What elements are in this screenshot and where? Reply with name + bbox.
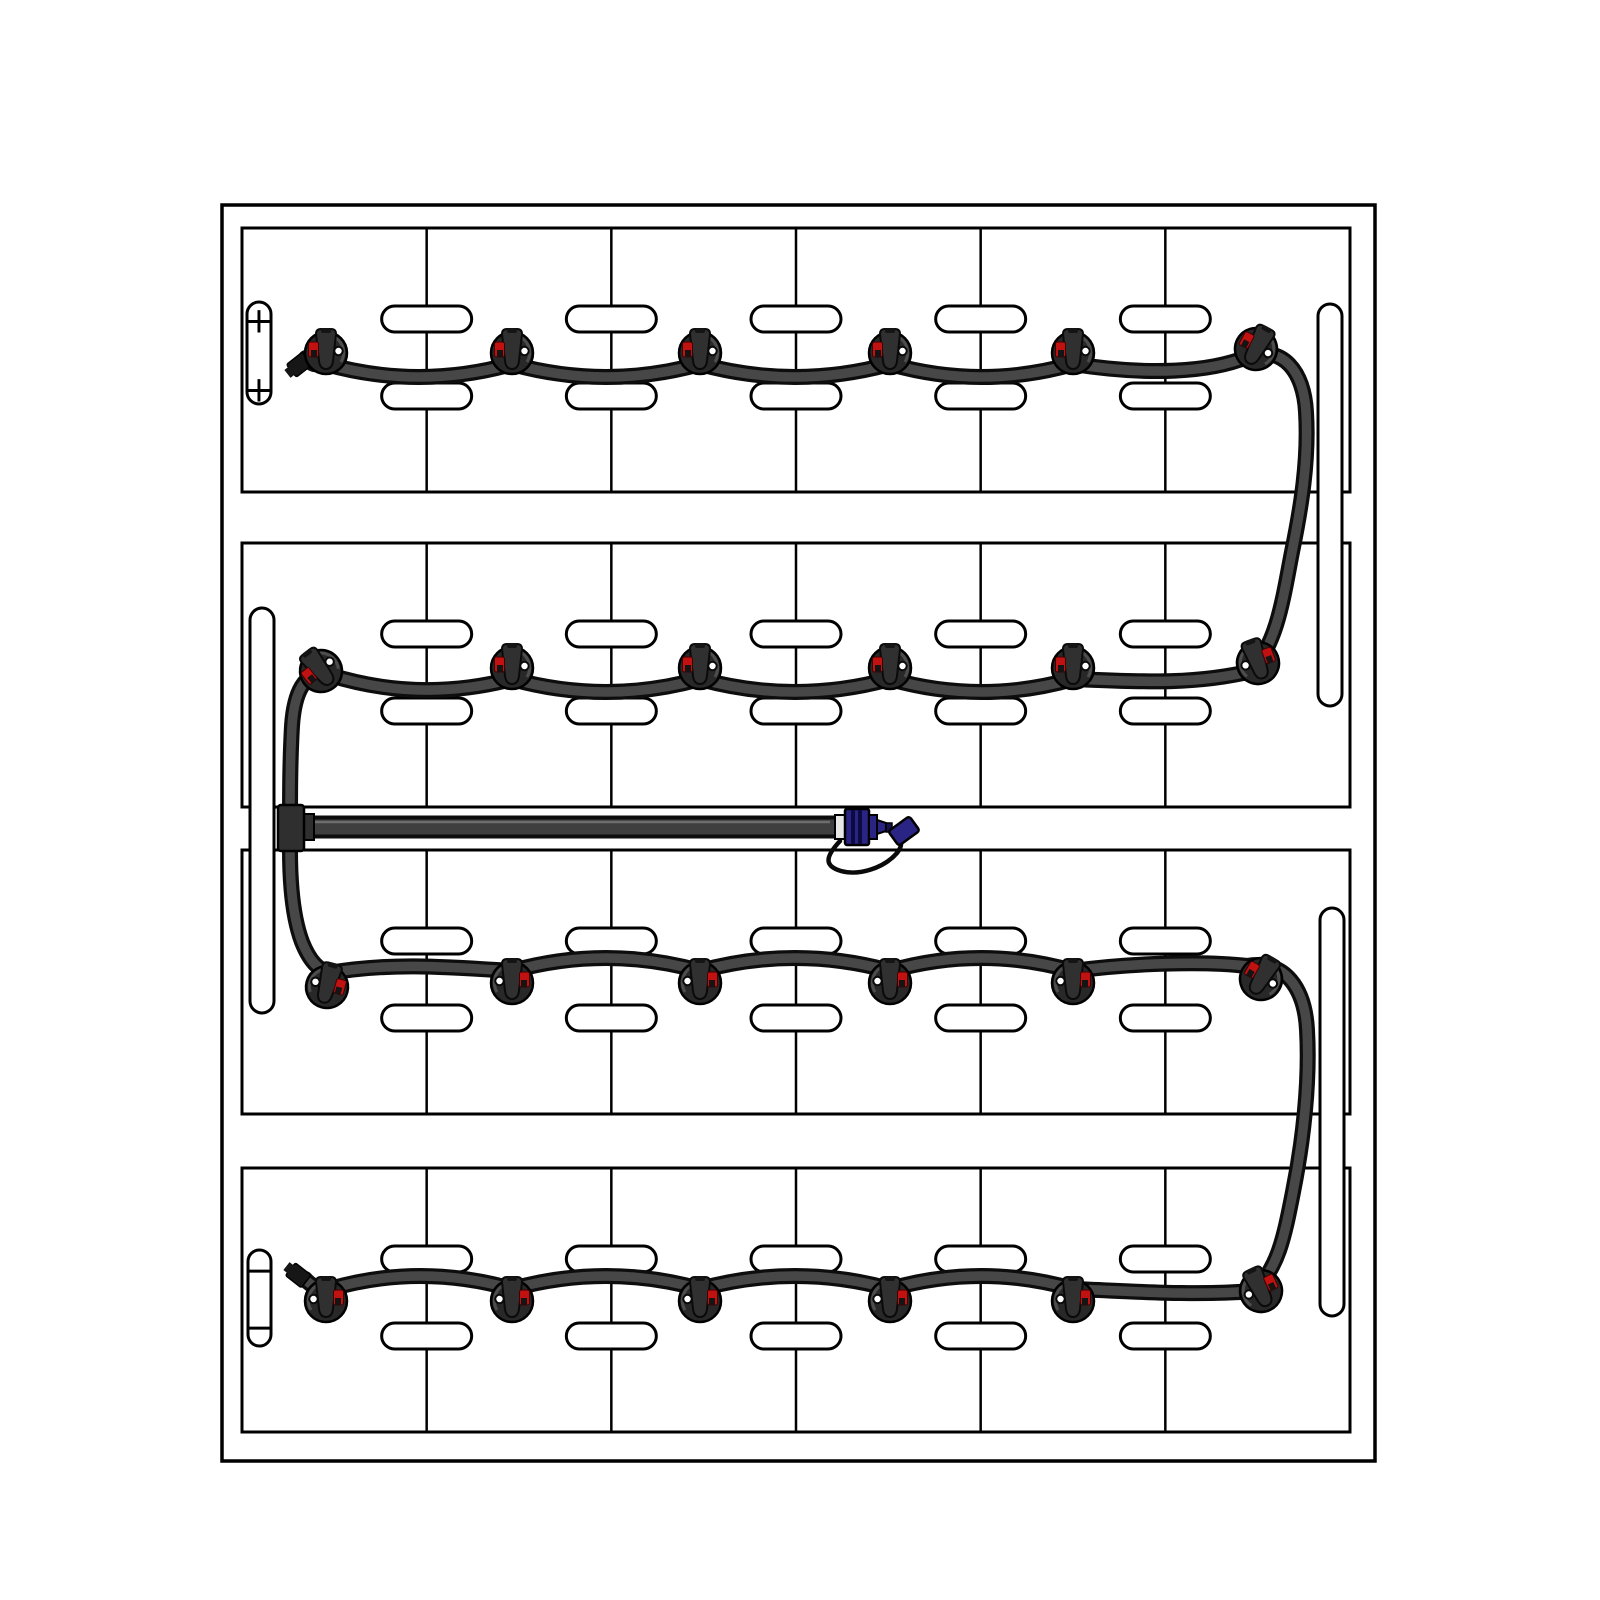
cap-vent-dot xyxy=(898,347,906,355)
vent-slot xyxy=(751,1005,841,1031)
cap-vent-dot xyxy=(708,347,716,355)
vent-slot xyxy=(1120,928,1210,954)
cap-indicator-notch xyxy=(311,350,317,357)
cap-indicator-notch xyxy=(875,665,881,672)
cap-tab xyxy=(321,1276,331,1281)
vent-slot xyxy=(566,698,656,724)
vent-slot xyxy=(382,1323,472,1349)
negative-terminal-symbol: − xyxy=(244,1308,274,1349)
vent-slot xyxy=(1120,1246,1210,1272)
vent-slot xyxy=(382,383,472,409)
vent-slot xyxy=(1120,1323,1210,1349)
vent-slot xyxy=(751,698,841,724)
vent-slot xyxy=(936,698,1026,724)
cap-vent-dot xyxy=(1056,977,1064,985)
cap-tab xyxy=(885,643,895,648)
cap-tab xyxy=(695,328,705,333)
cap-tab xyxy=(507,1276,517,1281)
vent-slot xyxy=(936,621,1026,647)
vent-slot xyxy=(936,1005,1026,1031)
cap-vent-dot xyxy=(708,662,716,670)
cap-indicator-notch xyxy=(685,665,691,672)
vent-slot xyxy=(1120,383,1210,409)
vent-slot xyxy=(382,698,472,724)
vent-slot xyxy=(751,621,841,647)
cap-tab xyxy=(507,328,517,333)
vent-slot xyxy=(751,306,841,332)
cap-vent-dot xyxy=(873,1295,881,1303)
cap-tab xyxy=(885,958,895,963)
cap-indicator-notch xyxy=(521,1298,527,1305)
tee-fitting xyxy=(278,805,304,851)
vent-slot xyxy=(382,621,472,647)
cap-indicator-notch xyxy=(1082,980,1088,987)
cap-vent-dot xyxy=(898,662,906,670)
cap-indicator-notch xyxy=(521,980,527,987)
vent-slot xyxy=(566,383,656,409)
vent-slot xyxy=(751,383,841,409)
battery-watering-diagram: ++−− xyxy=(0,0,1600,1600)
cap-vent-dot xyxy=(520,662,528,670)
cap-vent-dot xyxy=(873,977,881,985)
vent-slot xyxy=(566,306,656,332)
cap-tab xyxy=(1068,328,1078,333)
cap-indicator-notch xyxy=(497,665,503,672)
quick-connector-rib xyxy=(858,810,862,844)
cap-tab xyxy=(1068,643,1078,648)
positive-terminal-symbol: + xyxy=(244,301,274,342)
vent-slot xyxy=(1120,621,1210,647)
quick-connector-nozzle xyxy=(877,820,886,834)
cap-vent-dot xyxy=(683,1295,691,1303)
cap-tab xyxy=(321,328,331,333)
cap-indicator-notch xyxy=(497,350,503,357)
cap-vent-dot xyxy=(1081,662,1089,670)
side-vent-channel xyxy=(250,608,274,1013)
vent-slot xyxy=(382,928,472,954)
vent-slot xyxy=(1120,698,1210,724)
cap-vent-dot xyxy=(334,347,342,355)
cap-vent-dot xyxy=(1081,347,1089,355)
cap-indicator-notch xyxy=(875,350,881,357)
vent-slot xyxy=(566,1005,656,1031)
vent-slot xyxy=(1120,1005,1210,1031)
cap-vent-dot xyxy=(683,977,691,985)
vent-slot xyxy=(936,306,1026,332)
cap-indicator-notch xyxy=(1058,665,1064,672)
cap-vent-dot xyxy=(309,1295,317,1303)
side-vent-channel xyxy=(1318,304,1342,706)
cap-indicator-notch xyxy=(1058,350,1064,357)
cap-tab xyxy=(1068,958,1078,963)
vent-slot xyxy=(751,1323,841,1349)
diagram-canvas: ++−− xyxy=(0,0,1600,1600)
cap-tab xyxy=(695,1276,705,1281)
cap-vent-dot xyxy=(520,347,528,355)
negative-terminal-symbol: − xyxy=(244,1251,274,1292)
quick-connector-body xyxy=(845,809,869,845)
cap-tab xyxy=(695,958,705,963)
vent-slot xyxy=(936,1323,1026,1349)
cap-indicator-notch xyxy=(709,1298,715,1305)
quick-connector-rib xyxy=(851,810,855,844)
vent-slot xyxy=(382,1005,472,1031)
cap-vent-dot xyxy=(310,977,320,987)
cap-indicator-notch xyxy=(685,350,691,357)
cap-vent-dot xyxy=(495,1295,503,1303)
vent-slot xyxy=(566,1323,656,1349)
vent-slot xyxy=(566,621,656,647)
cap-tab xyxy=(885,1276,895,1281)
side-vent-channel xyxy=(1320,908,1344,1316)
vent-slot xyxy=(1120,306,1210,332)
cap-tab xyxy=(1068,1276,1078,1281)
quick-connector-step xyxy=(869,815,877,839)
vent-slot xyxy=(382,306,472,332)
cap-tab xyxy=(695,643,705,648)
cap-tab xyxy=(507,958,517,963)
cap-vent-dot xyxy=(1056,1295,1064,1303)
cap-indicator-notch xyxy=(899,980,905,987)
cap-indicator-notch xyxy=(709,980,715,987)
vent-slot xyxy=(936,383,1026,409)
cap-indicator-notch xyxy=(1082,1298,1088,1305)
quick-connector-collar xyxy=(835,815,845,839)
cap-tab xyxy=(885,328,895,333)
cap-vent-dot xyxy=(495,977,503,985)
cap-tab xyxy=(507,643,517,648)
cap-indicator-notch xyxy=(335,1298,341,1305)
positive-terminal-symbol: + xyxy=(244,370,274,411)
cap-indicator-notch xyxy=(899,1298,905,1305)
